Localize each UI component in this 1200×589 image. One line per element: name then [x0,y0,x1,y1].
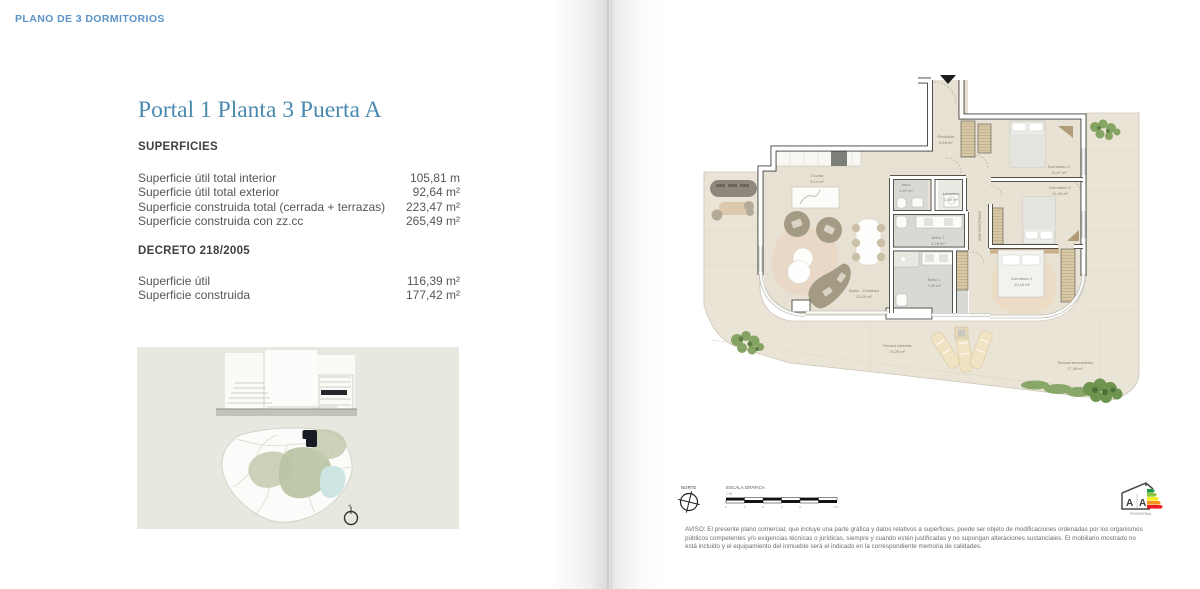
svg-text:8,18 m²: 8,18 m² [939,140,953,145]
svg-text:9,14 m²: 9,14 m² [810,179,824,184]
svg-text:5 m: 5 m [834,505,840,509]
svg-text:1,90 m²: 1,90 m² [944,197,958,202]
svg-text:7,05 m²: 7,05 m² [927,283,941,288]
svg-text:Baño 1: Baño 1 [928,277,941,282]
svg-text:A: A [1139,498,1146,509]
svg-text:11,07 m²: 11,07 m² [1051,170,1067,175]
svg-text:NORTE: NORTE [681,485,696,490]
svg-text:1:75: 1:75 [726,492,732,496]
svg-text:4: 4 [799,505,801,509]
svg-text:11,40 m²: 11,40 m² [1052,191,1068,196]
svg-text:PROVISIONAL: PROVISIONAL [1130,512,1152,516]
svg-text:Terraza cubierta: Terraza cubierta [883,343,912,348]
svg-text:Recibidor: Recibidor [938,134,956,139]
svg-text:Aseo: Aseo [901,182,911,187]
svg-text:0: 0 [725,505,727,509]
svg-text:Dormitorio 3: Dormitorio 3 [1048,164,1071,169]
svg-text:4,76 m²: 4,76 m² [931,241,945,246]
svg-text:Dormitorio 2: Dormitorio 2 [1049,185,1072,190]
svg-text:Terraza descubierta: Terraza descubierta [1057,360,1093,365]
svg-text:Cocina: Cocina [811,173,824,178]
svg-text:ESCALA GRÁFICA: ESCALA GRÁFICA [726,484,765,490]
svg-text:1,92 m²: 1,92 m² [899,188,913,193]
svg-text:Baño 2: Baño 2 [932,235,945,240]
svg-text:3: 3 [781,505,783,509]
svg-text:A: A [1126,498,1133,509]
svg-text:ARMº EMPOTRADO: ARMº EMPOTRADO [978,211,982,241]
svg-text:Dormitorio 1: Dormitorio 1 [1011,276,1034,281]
svg-text:20,20 m²: 20,20 m² [856,294,872,299]
svg-text:Salón - Comedor: Salón - Comedor [849,288,880,293]
svg-text:15,16 m²: 15,16 m² [1014,282,1030,287]
svg-text:17,38 m²: 17,38 m² [1067,366,1083,371]
svg-text:Lavadero: Lavadero [943,191,960,196]
svg-text:2: 2 [762,505,764,509]
svg-text:1: 1 [744,505,746,509]
svg-text:75,26 m²: 75,26 m² [889,349,905,354]
